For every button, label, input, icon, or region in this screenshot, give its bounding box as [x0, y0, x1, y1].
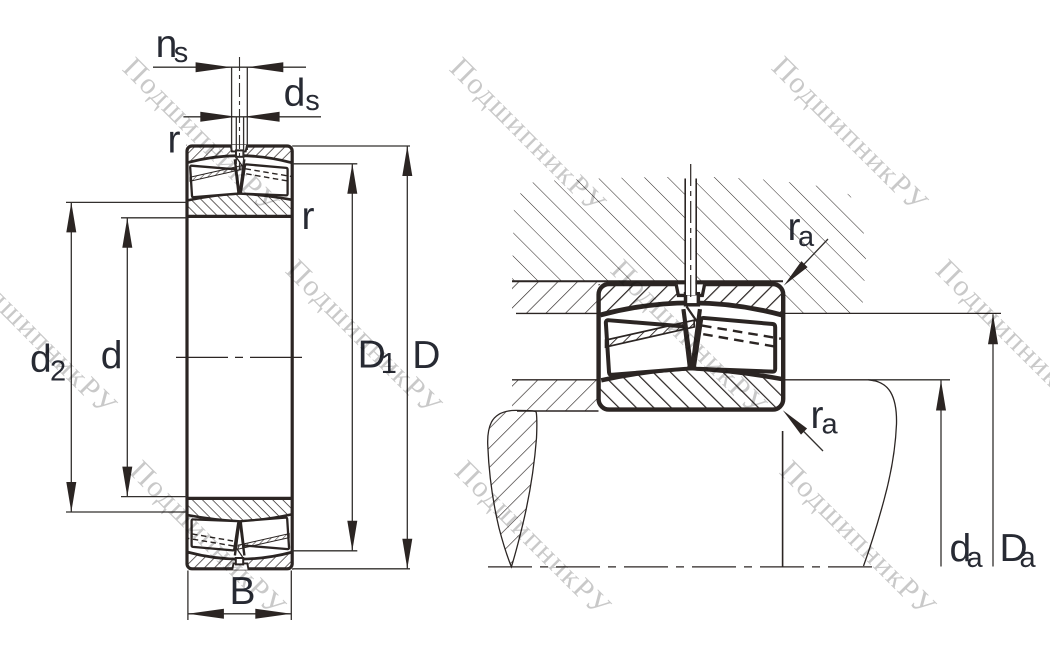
svg-text:a: a	[798, 221, 815, 253]
svg-text:a: a	[1020, 542, 1037, 574]
svg-text:d: d	[284, 72, 306, 115]
svg-text:a: a	[967, 542, 984, 574]
svg-text:s: s	[305, 85, 320, 117]
svg-text:r: r	[302, 195, 315, 238]
svg-text:a: a	[822, 409, 839, 441]
svg-text:s: s	[174, 37, 189, 69]
svg-text:d: d	[101, 335, 123, 378]
